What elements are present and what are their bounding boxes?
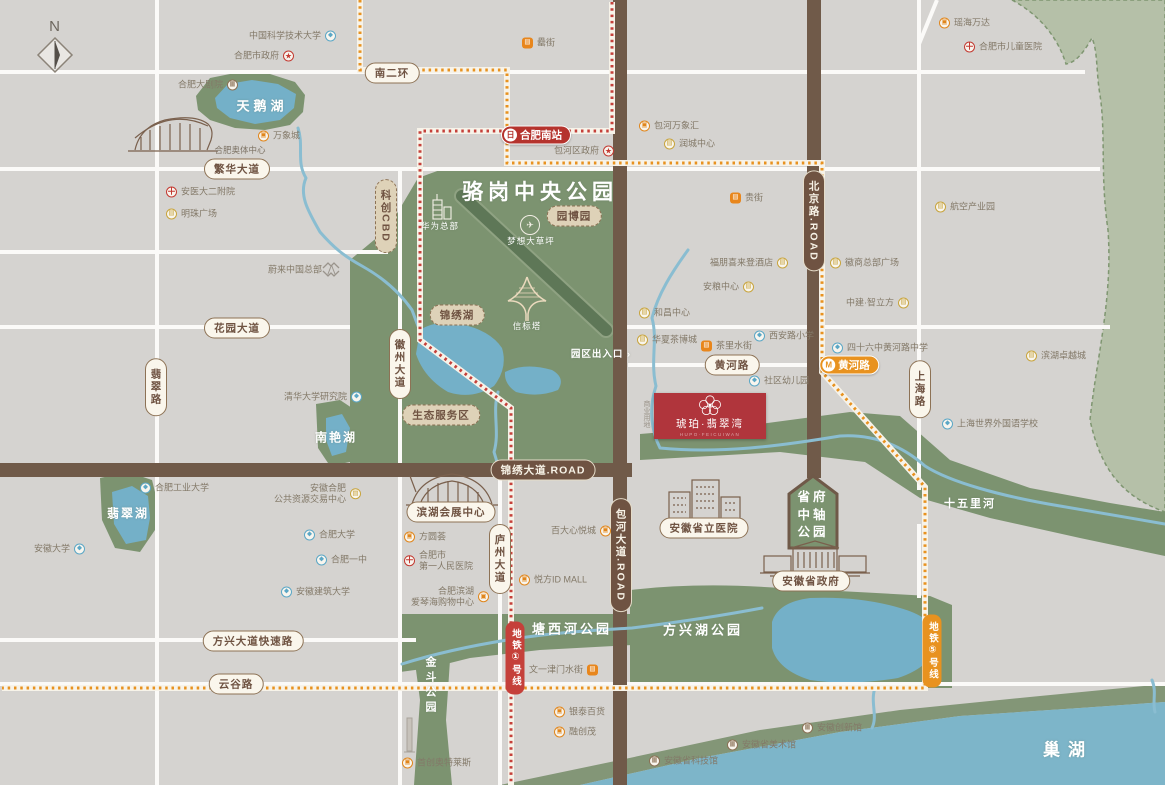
poi-mall: ▣首创奥特莱斯 — [402, 758, 471, 769]
street-icon: ▤ — [587, 665, 598, 676]
poi-label-line: 茶里水街 — [716, 341, 752, 352]
road-label: 锦绣湖 — [430, 305, 485, 326]
poi-label: 安徽创新馆 — [817, 723, 862, 734]
poi-label-line: 罍街 — [537, 38, 555, 49]
road-label: 徽州大道 — [389, 329, 411, 399]
museum-icon: ▦ — [727, 740, 738, 751]
poi-label-line: 社区幼儿园 — [764, 376, 809, 387]
school-icon: ◆ — [281, 587, 292, 598]
poi-label-line: 华夏茶博城 — [652, 335, 697, 346]
road-label: 包河大道.ROAD — [610, 498, 632, 612]
poi-label-line: 合肥市儿童医院 — [979, 42, 1042, 53]
poi-school: ◆安徽大学 — [34, 544, 85, 555]
poi-label: 首创奥特莱斯 — [417, 758, 471, 769]
project-name: 琥珀·翡翠湾 — [676, 416, 744, 431]
poi-hosp: ＋合肥市儿童医院 — [964, 42, 1042, 53]
area-label: 骆岗中央公园 — [462, 176, 618, 206]
poi-school: ◆西安路小学 — [754, 331, 814, 342]
poi-label-line: 滨湖卓越城 — [1041, 351, 1086, 362]
metro-station-name: 黄河路 — [838, 358, 870, 373]
road-label: 北京路.ROAD — [803, 170, 825, 271]
road-label: 方兴大道快速路 — [203, 631, 304, 652]
metro-station: 日合肥南站 — [501, 126, 571, 145]
project-subtitle: HUPO·FEICUIWAN — [680, 432, 741, 437]
poi-biz: ▤明珠广场 — [166, 209, 217, 220]
area-label: 园区出入口 › — [571, 346, 631, 360]
poi-biz: ▤安粮中心 — [703, 282, 754, 293]
project-marker: 琥珀·翡翠湾 HUPO·FEICUIWAN — [654, 393, 766, 439]
poi-label: 贵街 — [745, 193, 763, 204]
biz-icon: ▤ — [637, 335, 648, 346]
poi-school: ◆四十六中黄河路中学 — [832, 343, 928, 354]
poi-biz: ▤安徽合肥公共资源交易中心 — [274, 483, 361, 505]
poi-label: 安徽合肥公共资源交易中心 — [274, 483, 346, 505]
poi-label-line: 安徽合肥 — [310, 483, 346, 494]
area-label: 合肥奥体中心 — [214, 144, 265, 156]
poi-label-line: 中国科学技术大学 — [249, 31, 321, 42]
poi-label-line: 蔚来中国总部 — [268, 265, 322, 276]
poi-school: ◆安徽建筑大学 — [281, 587, 350, 598]
school-icon: ◆ — [140, 483, 151, 494]
poi-label-line: 合肥大剧院 — [178, 80, 223, 91]
poi-biz: ▤福朋喜来登酒店 — [710, 258, 788, 269]
hosp-icon: ＋ — [166, 187, 177, 198]
poi-school: ◆合肥一中 — [316, 555, 367, 566]
poi-biz: ▤润城中心 — [664, 139, 715, 150]
poi-label-line: 合肥一中 — [331, 555, 367, 566]
street-icon: ▤ — [730, 193, 741, 204]
metro-station: M黄河路 — [819, 356, 879, 375]
poi-label-line: 融创茂 — [569, 727, 596, 738]
area-label: 天鹅湖 — [236, 96, 287, 115]
area-label: 塘西河公园 — [532, 619, 612, 638]
road-label: 花园大道 — [204, 318, 270, 339]
poi-label: 社区幼儿园 — [764, 376, 809, 387]
poi-label: 万象城 — [273, 131, 300, 142]
poi-biz: ▤滨湖卓越城 — [1026, 351, 1086, 362]
area-label: 商业用地 — [641, 400, 651, 428]
poi-label-line: 方圆荟 — [419, 532, 446, 543]
poi-label-line: 合肥大学 — [319, 530, 355, 541]
poi-mall: ▣银泰百货 — [554, 707, 605, 718]
poi-label: 和昌中心 — [654, 308, 690, 319]
area-label: 金斗公园 — [422, 656, 438, 716]
poi-label: 福朋喜来登酒店 — [710, 258, 773, 269]
poi-label: 中建·智立方 — [846, 298, 894, 309]
school-icon: ◆ — [351, 392, 362, 403]
poi-school: ◆社区幼儿园 — [749, 376, 809, 387]
poi-mall: ▣方圆荟 — [404, 532, 446, 543]
poi-label: 悦方ID MALL — [534, 575, 587, 586]
poi-biz: ▤华夏茶博城 — [637, 335, 697, 346]
poi-label-line: 安徽大学 — [34, 544, 70, 555]
road-label: 翡翠路 — [145, 358, 167, 416]
poi-mall: ▣融创茂 — [554, 727, 596, 738]
poi-label-line: 悦方ID MALL — [534, 575, 587, 586]
road-label: 安徽省立医院 — [660, 518, 749, 539]
biz-icon: ▤ — [350, 489, 361, 500]
poi-gov: ★合肥市政府 — [234, 51, 294, 62]
poi-street: ▤文一津门水街 — [529, 665, 598, 676]
poi-label-line: 上海世界外国语学校 — [957, 419, 1038, 430]
poi-label: 安徽省美术馆 — [742, 740, 796, 751]
poi-label: 西安路小学 — [769, 331, 814, 342]
location-map: N ✈ 省府中轴公园 琥珀·翡翠湾 HUPO·FEICUIWAN 骆岗中央公园园… — [0, 0, 1165, 785]
poi-label-line: 合肥工业大学 — [155, 483, 209, 494]
poi-label-line: 包河区政府 — [554, 146, 599, 157]
hosp-icon: ＋ — [964, 42, 975, 53]
poi-label: 融创茂 — [569, 727, 596, 738]
poi-label: 蔚来中国总部 — [268, 265, 322, 276]
area-label: 方兴湖公园 — [663, 620, 743, 639]
poi-label-line: 贵街 — [745, 193, 763, 204]
road-label: 繁华大道 — [204, 159, 270, 180]
museum-icon: ▦ — [649, 756, 660, 767]
project-logo-icon — [698, 395, 722, 415]
poi-label-line: 安徽创新馆 — [817, 723, 862, 734]
poi-label-line: 合肥滨湖 — [438, 586, 474, 597]
poi-label-line: 安徽省美术馆 — [742, 740, 796, 751]
poi-label-line: 清华大学研究院 — [284, 392, 347, 403]
street-icon: ▤ — [701, 341, 712, 352]
poi-school: ◆合肥大学 — [304, 530, 355, 541]
area-label: 信标塔 — [513, 320, 542, 332]
poi-mall: ▣包河万象汇 — [639, 121, 699, 132]
poi-label-line: 西安路小学 — [769, 331, 814, 342]
axis-park-label-line: 省府 — [789, 489, 837, 507]
poi-label: 包河区政府 — [554, 146, 599, 157]
street-icon: ▤ — [522, 38, 533, 49]
poi-label: 合肥大学 — [319, 530, 355, 541]
poi-label-line: 安徽省科技馆 — [664, 756, 718, 767]
axis-park-label-line: 中轴 — [789, 507, 837, 525]
poi-label-line: 文一津门水街 — [529, 665, 583, 676]
mall-icon: ▣ — [402, 758, 413, 769]
poi-label: 安医大二附院 — [181, 187, 235, 198]
poi-street: ▤茶里水街 — [701, 341, 752, 352]
poi-label: 徽商总部广场 — [845, 258, 899, 269]
poi-label-line: 润城中心 — [679, 139, 715, 150]
hosp-icon: ＋ — [404, 556, 415, 567]
road-label: 科创CBD — [375, 179, 397, 253]
mall-icon: ▣ — [478, 592, 489, 603]
gov-icon: ★ — [603, 146, 614, 157]
metro-station-icon: 日 — [504, 129, 517, 142]
school-icon: ◆ — [832, 343, 843, 354]
school-icon: ◆ — [316, 555, 327, 566]
biz-icon: ▤ — [830, 258, 841, 269]
road-label: 滨湖会展中心 — [407, 502, 496, 523]
poi-hosp: ＋安医大二附院 — [166, 187, 235, 198]
road-label: 安徽省政府 — [772, 571, 850, 592]
poi-label: 安徽省科技馆 — [664, 756, 718, 767]
poi-label: 合肥市儿童医院 — [979, 42, 1042, 53]
poi-school: ◆上海世界外国语学校 — [942, 419, 1038, 430]
biz-icon: ▤ — [898, 298, 909, 309]
biz-icon: ▤ — [1026, 351, 1037, 362]
mall-icon: ▣ — [404, 532, 415, 543]
mall-icon: ▣ — [258, 131, 269, 142]
poi-label: 安徽大学 — [34, 544, 70, 555]
mall-icon: ▣ — [600, 526, 611, 537]
biz-icon: ▤ — [664, 139, 675, 150]
poi-label: 瑶海万达 — [954, 18, 990, 29]
poi-label-line: 福朋喜来登酒店 — [710, 258, 773, 269]
poi-label-line: 合肥市政府 — [234, 51, 279, 62]
school-icon: ◆ — [942, 419, 953, 430]
poi-label-line: 徽商总部广场 — [845, 258, 899, 269]
poi-street: ▤罍街 — [522, 38, 555, 49]
poi-label: 合肥市政府 — [234, 51, 279, 62]
poi-label: 四十六中黄河路中学 — [847, 343, 928, 354]
poi-label-line: 爱琴海购物中心 — [411, 597, 474, 608]
poi-museum: ▦合肥大剧院 — [178, 80, 238, 91]
poi-label: 合肥市第一人民医院 — [419, 550, 473, 572]
poi-label-line: 安医大二附院 — [181, 187, 235, 198]
poi-mall: ▣百大心悦城 — [551, 526, 611, 537]
biz-icon: ▤ — [743, 282, 754, 293]
poi-mall: ▣合肥滨湖爱琴海购物中心 — [411, 586, 489, 608]
poi-school: ◆清华大学研究院 — [284, 392, 362, 403]
road-label: 园博园 — [547, 206, 602, 227]
area-label: 华为总部 — [421, 220, 459, 232]
mall-icon: ▣ — [639, 121, 650, 132]
school-icon: ◆ — [304, 530, 315, 541]
poi-street: ▤贵街 — [730, 193, 763, 204]
poi-label: 中国科学技术大学 — [249, 31, 321, 42]
airplane-icon: ✈ — [520, 215, 540, 235]
road-label: 生态服务区 — [402, 405, 480, 426]
road-label: 云谷路 — [209, 674, 264, 695]
road-label: 锦绣大道.ROAD — [491, 460, 596, 481]
poi-label: 润城中心 — [679, 139, 715, 150]
poi-museum: ▦安徽省科技馆 — [649, 756, 718, 767]
poi-label-line: 四十六中黄河路中学 — [847, 343, 928, 354]
poi-label-line: 银泰百货 — [569, 707, 605, 718]
area-label: 翡翠湖 — [107, 505, 149, 522]
poi-school: ◆中国科学技术大学 — [249, 31, 336, 42]
poi-label: 合肥滨湖爱琴海购物中心 — [411, 586, 474, 608]
poi-label: 方圆荟 — [419, 532, 446, 543]
metro-line-label: 地铁⑤号线 — [923, 615, 942, 688]
axis-park-label: 省府中轴公园 — [789, 489, 837, 542]
gov-icon: ★ — [283, 51, 294, 62]
poi-label: 合肥一中 — [331, 555, 367, 566]
poi-label-line: 第一人民医院 — [419, 561, 473, 572]
poi-hosp: ＋合肥市第一人民医院 — [404, 550, 473, 572]
road-label: 南二环 — [365, 63, 420, 84]
poi-biz: ▤中建·智立方 — [846, 298, 909, 309]
poi-label-line: 首创奥特莱斯 — [417, 758, 471, 769]
poi-label-line: 安粮中心 — [703, 282, 739, 293]
poi-museum: ▦安徽创新馆 — [802, 723, 862, 734]
biz-icon: ▤ — [777, 258, 788, 269]
poi-biz: ▤航空产业园 — [935, 202, 995, 213]
poi-label: 银泰百货 — [569, 707, 605, 718]
poi-label-line: 百大心悦城 — [551, 526, 596, 537]
poi-museum: ▦安徽省美术馆 — [727, 740, 796, 751]
metro-station-icon: M — [822, 359, 835, 372]
poi-label-line: 瑶海万达 — [954, 18, 990, 29]
poi-label-line: 和昌中心 — [654, 308, 690, 319]
museum-icon: ▦ — [802, 723, 813, 734]
poi-label: 合肥工业大学 — [155, 483, 209, 494]
biz-icon: ▤ — [639, 308, 650, 319]
biz-icon: ▤ — [935, 202, 946, 213]
poi-label: 包河万象汇 — [654, 121, 699, 132]
poi-label: 文一津门水街 — [529, 665, 583, 676]
metro-station-name: 合肥南站 — [520, 128, 562, 143]
poi-biz: ▤徽商总部广场 — [830, 258, 899, 269]
compass-north-label: N — [38, 18, 72, 35]
poi-label: 滨湖卓越城 — [1041, 351, 1086, 362]
museum-icon: ▦ — [227, 80, 238, 91]
poi-label-line: 万象城 — [273, 131, 300, 142]
area-label: 巢湖 — [1043, 736, 1093, 761]
poi-label: 明珠广场 — [181, 209, 217, 220]
metro-line-label: 地铁①号线 — [506, 622, 525, 695]
axis-park-label-line: 公园 — [789, 524, 837, 542]
poi-mall: ▣万象城 — [258, 131, 300, 142]
poi-school: ◆合肥工业大学 — [140, 483, 209, 494]
poi-label: 安徽建筑大学 — [296, 587, 350, 598]
poi-label: 茶里水街 — [716, 341, 752, 352]
poi-label: 罍街 — [537, 38, 555, 49]
poi-label: 百大心悦城 — [551, 526, 596, 537]
poi-label: 安粮中心 — [703, 282, 739, 293]
poi-label-line: 中建·智立方 — [846, 298, 894, 309]
school-icon: ◆ — [754, 331, 765, 342]
poi-nio: ⋀蔚来中国总部 — [268, 265, 337, 276]
nio-icon: ⋀ — [326, 265, 337, 276]
road-label: 庐州大道 — [489, 524, 511, 594]
mall-icon: ▣ — [554, 707, 565, 718]
label-layer: N ✈ 省府中轴公园 琥珀·翡翠湾 HUPO·FEICUIWAN 骆岗中央公园园… — [0, 0, 1165, 785]
mall-icon: ▣ — [554, 727, 565, 738]
road-label: 上海路 — [909, 360, 931, 418]
poi-biz: ▤和昌中心 — [639, 308, 690, 319]
poi-label: 合肥大剧院 — [178, 80, 223, 91]
road-label: 黄河路 — [705, 355, 760, 376]
area-label: 梦想大草坪 — [507, 235, 555, 247]
school-icon: ◆ — [749, 376, 760, 387]
poi-label-line: 明珠广场 — [181, 209, 217, 220]
mall-icon: ▣ — [939, 18, 950, 29]
school-icon: ◆ — [74, 544, 85, 555]
poi-mall: ▣瑶海万达 — [939, 18, 990, 29]
poi-label-line: 包河万象汇 — [654, 121, 699, 132]
school-icon: ◆ — [325, 31, 336, 42]
mall-icon: ▣ — [519, 575, 530, 586]
biz-icon: ▤ — [166, 209, 177, 220]
poi-label: 华夏茶博城 — [652, 335, 697, 346]
poi-label: 航空产业园 — [950, 202, 995, 213]
poi-gov: ★包河区政府 — [554, 146, 614, 157]
poi-label: 上海世界外国语学校 — [957, 419, 1038, 430]
area-label: 南艳湖 — [315, 429, 357, 446]
poi-label-line: 航空产业园 — [950, 202, 995, 213]
poi-label-line: 安徽建筑大学 — [296, 587, 350, 598]
area-label: 十五里河 — [944, 495, 996, 511]
poi-label-line: 公共资源交易中心 — [274, 494, 346, 505]
poi-mall: ▣悦方ID MALL — [519, 575, 587, 586]
poi-label-line: 合肥市 — [419, 550, 473, 561]
poi-label: 清华大学研究院 — [284, 392, 347, 403]
